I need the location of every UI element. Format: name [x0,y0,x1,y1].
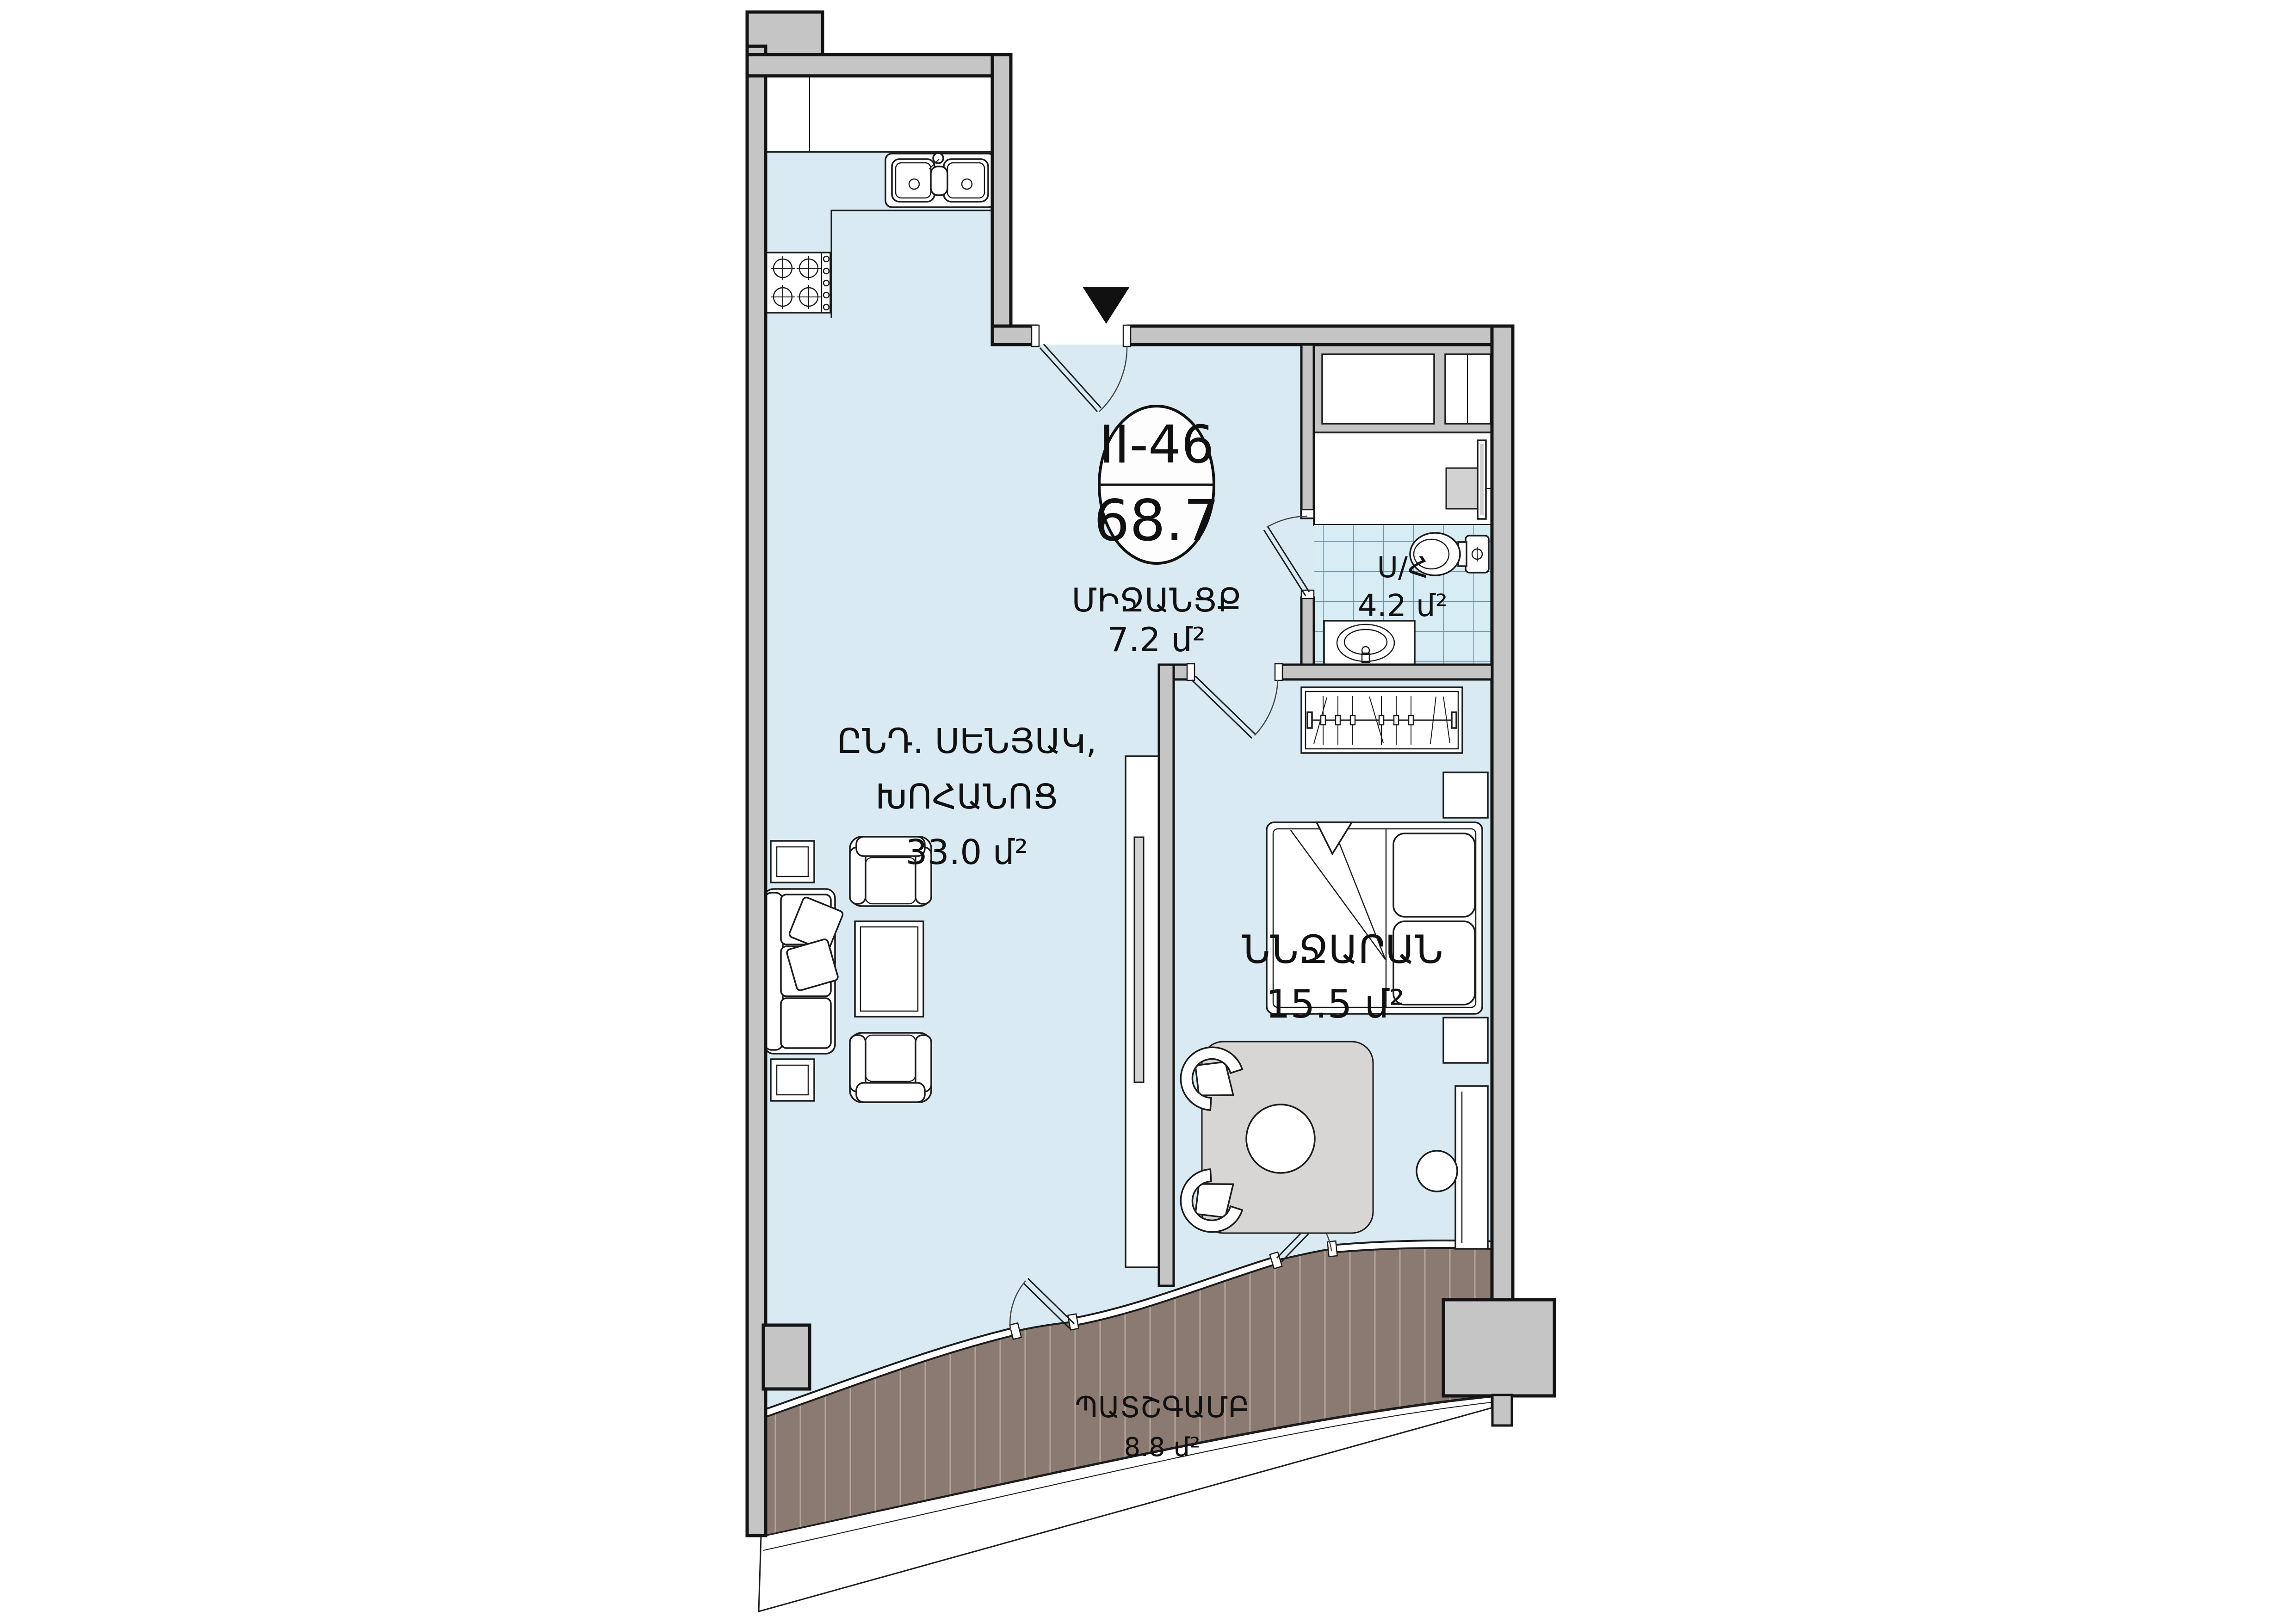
wall-left [747,46,766,1536]
corridor-name: ՄԻՋԱՆՑՔ [1071,581,1241,619]
balcony-area: 8.8 մ² [1124,1432,1201,1463]
kitchen-cabinets [766,75,992,152]
living-area: 33.0 մ² [906,833,1028,872]
wall-left-notch [763,1325,810,1389]
bedroom-name: ՆՆՋԱՐԱՆ [1242,927,1443,972]
wall-kitchen-right [992,55,1011,332]
bathroom-area: 4.2 մ² [1358,588,1448,623]
wall-right-pillar [1443,1300,1554,1396]
kitchen-sink [885,153,995,207]
wall-top [747,55,1011,76]
wall-bedroom-top-right [1281,665,1492,679]
wall-right-stub [1492,1395,1512,1426]
wall-partition [1159,665,1174,1286]
wall-bathroom-left-upper [1301,345,1314,518]
nightstand-top [1443,772,1488,818]
side-table-bottom [771,1059,814,1101]
bathroom: Ս/Հ 4.2 մ² [1314,345,1492,665]
stove [766,253,830,313]
tv-console [1126,756,1159,1267]
side-table-top [771,841,814,882]
nightstand-bottom [1443,1018,1488,1063]
living-name-line2: ԽՈՀԱՆՈՑ [875,777,1058,817]
tv [1134,837,1144,1082]
desk [1455,1086,1488,1249]
wardrobe [1301,687,1462,753]
wall-bathroom-left-lower [1301,598,1314,665]
entrance-marker-triangle [1083,287,1130,324]
armchair-bottom [850,1033,931,1102]
wall-corridor-top-left [992,326,1036,345]
floor-plan: ՊԱՏՇԳԱՄԲ 8.8 մ² [0,0,2296,1623]
desk-stool [1417,1151,1457,1191]
balcony-name: ՊԱՏՇԳԱՄԲ [1075,1390,1249,1424]
duct-left [1322,354,1434,424]
corridor-area: 7.2 մ² [1108,620,1206,659]
unit-total-area: 68.7 [1094,488,1219,554]
coffee-table [855,921,923,1017]
unit-id: II-46 [1099,415,1214,475]
bathroom-sink [1324,621,1415,665]
sofa [764,889,844,1054]
wall-right [1492,326,1513,1302]
living-name-line1: ԸՆԴ. ՍԵՆՅԱԿ, [837,722,1096,761]
bedroom-table [1246,1105,1315,1173]
wall-corridor-top-right [1129,326,1513,345]
bedroom-area: 15.5 մ² [1266,981,1405,1027]
bathroom-name: Ս/Հ [1377,550,1429,584]
